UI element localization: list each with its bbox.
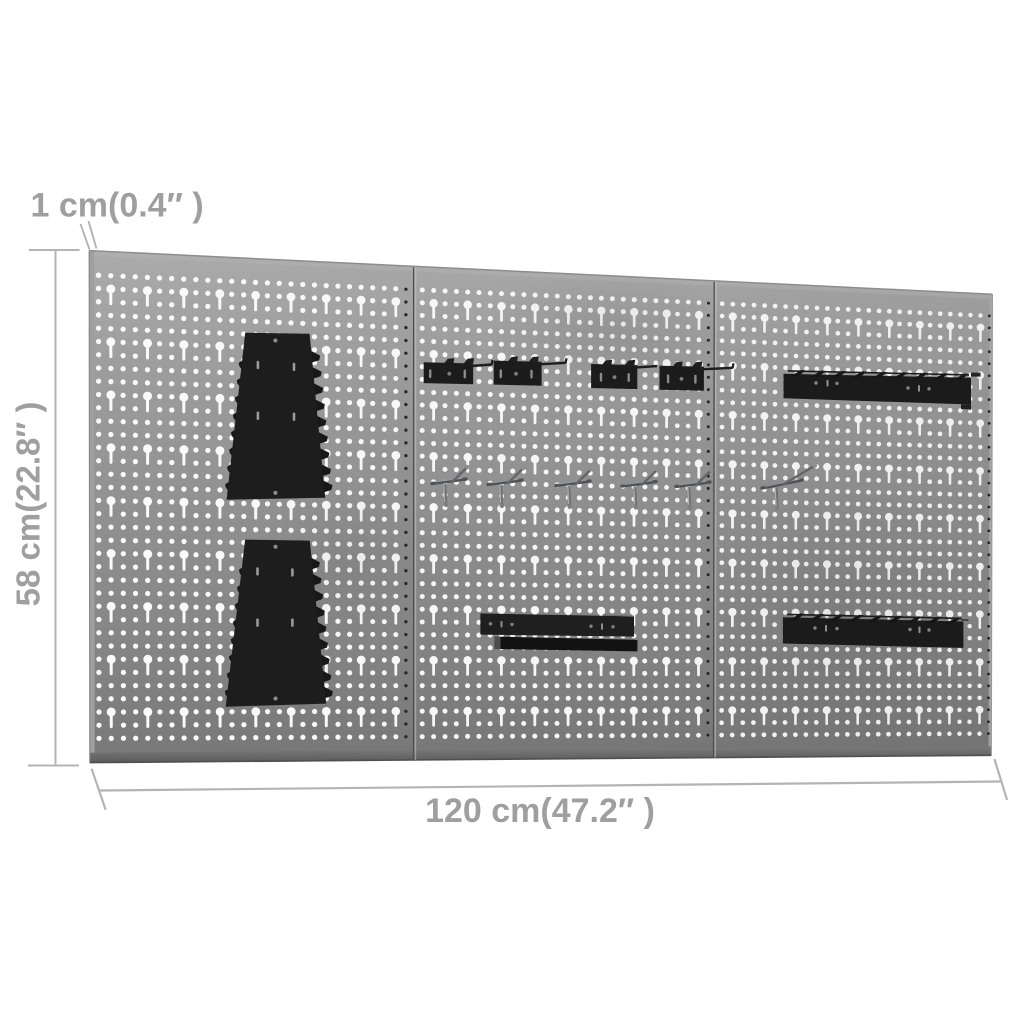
svg-text:120 cm(47.2″ ): 120 cm(47.2″ ) — [425, 792, 655, 830]
svg-text:58 cm(22.8″ ): 58 cm(22.8″ ) — [10, 402, 47, 607]
svg-text:1 cm(0.4″ ): 1 cm(0.4″ ) — [31, 187, 204, 225]
